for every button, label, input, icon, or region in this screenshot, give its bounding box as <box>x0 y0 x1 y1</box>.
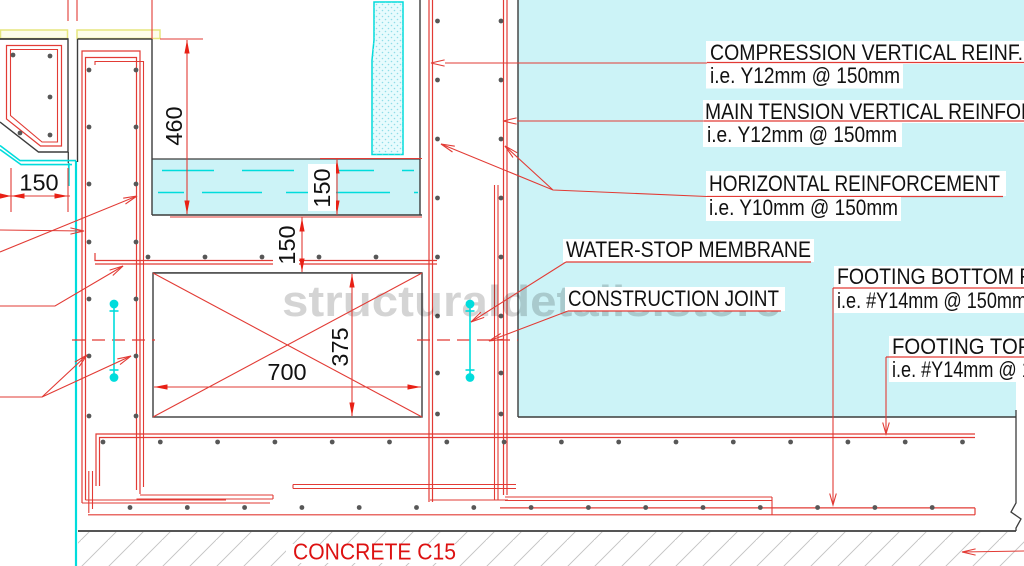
svg-text:i.e. Y12mm @ 150mm: i.e. Y12mm @ 150mm <box>710 63 900 88</box>
svg-text:i.e. Y12mm @ 150mm: i.e. Y12mm @ 150mm <box>707 122 897 147</box>
svg-text:COMPRESSION VERTICAL REINF.: COMPRESSION VERTICAL REINF. <box>710 40 1023 65</box>
svg-text:460: 460 <box>161 106 187 145</box>
svg-text:i.e. #Y14mm @ 150mm: i.e. #Y14mm @ 150mm <box>837 288 1024 313</box>
svg-text:150: 150 <box>274 225 300 264</box>
svg-text:375: 375 <box>327 327 353 366</box>
svg-text:FOOTING TOP REINF.: FOOTING TOP REINF. <box>892 334 1024 359</box>
svg-text:CONSTRUCTION JOINT: CONSTRUCTION JOINT <box>568 286 779 311</box>
svg-text:i.e. #Y14mm @ 150mm: i.e. #Y14mm @ 150mm <box>892 357 1024 382</box>
svg-text:HORIZONTAL REINFORCEMENT: HORIZONTAL REINFORCEMENT <box>709 171 1000 196</box>
svg-text:WATER-STOP MEMBRANE: WATER-STOP MEMBRANE <box>566 237 811 262</box>
svg-text:MAIN TENSION VERTICAL REINFOR: MAIN TENSION VERTICAL REINFOR <box>705 99 1024 124</box>
svg-text:i.e. Y10mm @ 150mm: i.e. Y10mm @ 150mm <box>709 195 898 220</box>
svg-text:150: 150 <box>309 168 335 207</box>
svg-text:700: 700 <box>267 359 306 385</box>
svg-text:CONCRETE C15: CONCRETE C15 <box>293 539 456 565</box>
svg-text:FOOTING BOTTOM REINF.: FOOTING BOTTOM REINF. <box>837 264 1024 289</box>
svg-text:150: 150 <box>19 170 58 196</box>
